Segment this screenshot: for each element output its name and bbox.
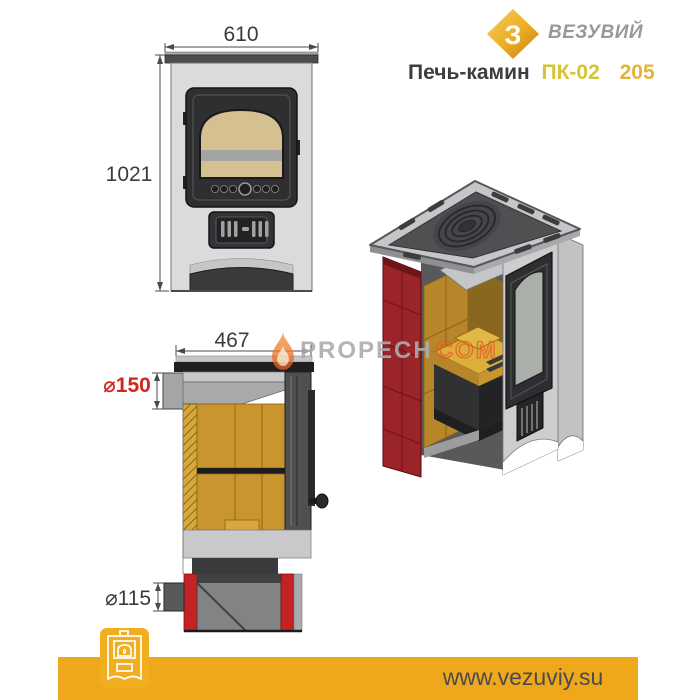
watermark: PROPECH COM — [270, 331, 498, 371]
section-firebricks — [183, 404, 285, 532]
smoke-chamber — [183, 372, 285, 382]
ash-pan-box — [184, 574, 302, 631]
iso-front-face — [503, 235, 558, 475]
flue-dimension: ⌀150 — [103, 373, 163, 409]
front-width-dimension: 610 — [165, 23, 318, 52]
section-depth-label: 467 — [214, 329, 249, 352]
outlet-diameter-label: ⌀115 — [105, 587, 151, 610]
front-height-dimension: 1021 — [106, 55, 169, 291]
flue-diameter-label: ⌀150 — [103, 374, 151, 397]
outlet-dimension: ⌀115 — [105, 583, 164, 611]
product-sheet: З ВЕЗУВИЙ Печь-камин ПК-02 205 610 — [0, 0, 700, 700]
ash-outlet-stub — [164, 583, 184, 611]
front-fire-door — [183, 88, 300, 207]
section-door — [285, 372, 328, 530]
door-glass — [200, 110, 283, 178]
front-top-plate — [165, 52, 318, 63]
front-width-label: 610 — [223, 23, 258, 46]
site-url: www.vezuviy.su — [408, 664, 638, 691]
front-height-label: 1021 — [106, 163, 153, 186]
front-view-diagram: 610 1021 — [106, 23, 318, 291]
flame-icon — [270, 331, 296, 371]
iso-door-glass — [515, 272, 543, 386]
watermark-suffix: COM — [436, 337, 498, 365]
watermark-name: PROPECH — [300, 337, 433, 365]
iso-right-casing — [558, 234, 583, 461]
section-mid-band — [183, 530, 311, 558]
door-handle-knob — [316, 494, 328, 508]
front-ash-door — [209, 212, 274, 248]
stove-badge-icon — [100, 628, 149, 688]
ash-drawer — [192, 558, 278, 574]
section-view-diagram: 467 ⌀150 — [103, 329, 328, 631]
iso-view-diagram — [370, 181, 583, 477]
baffle-plate — [183, 382, 285, 404]
